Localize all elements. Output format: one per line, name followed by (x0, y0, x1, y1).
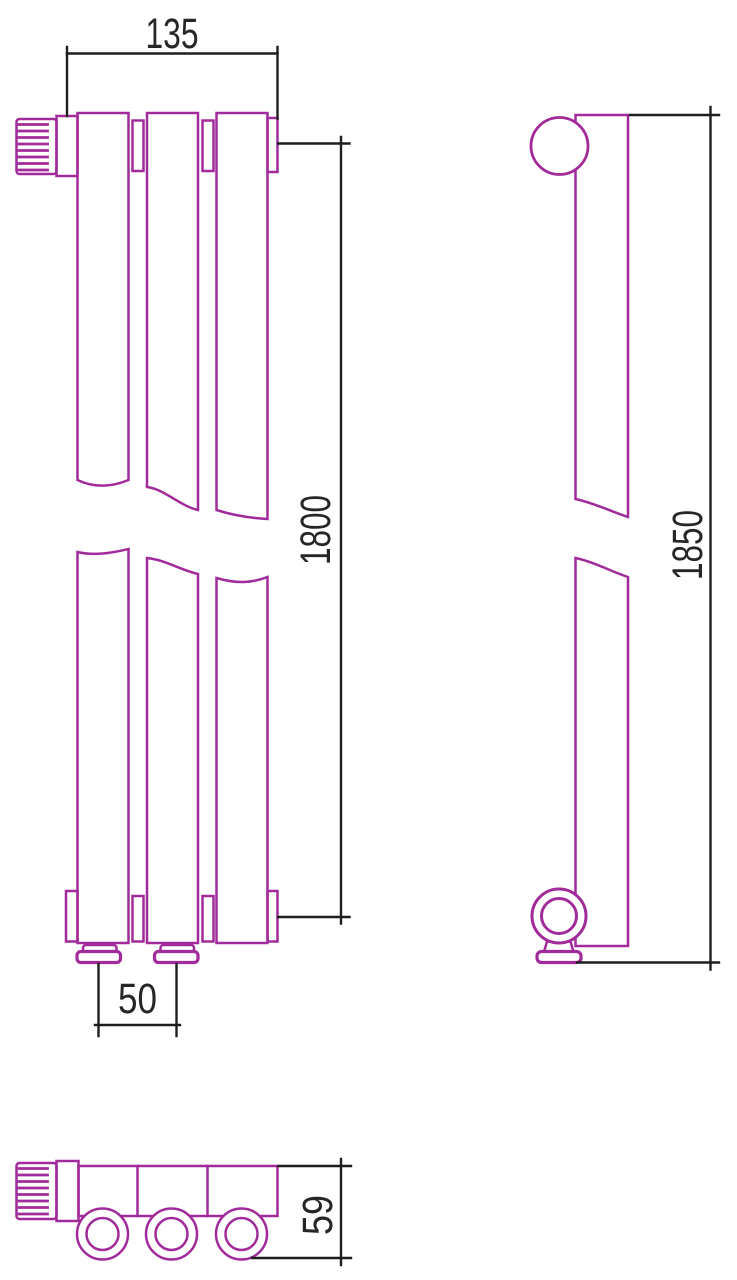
inlet-fitting-2-flange (155, 952, 199, 963)
valve-knob-bottom (17, 1163, 57, 1219)
bottom-right-tab (268, 891, 278, 942)
dimension-width: 135 (67, 10, 278, 119)
valve-knurl-front (19, 125, 48, 171)
column-1-upper (78, 113, 129, 486)
top-connector-tube-2 (203, 121, 214, 172)
top-connector-tube-1 (133, 121, 144, 172)
column-3-lower (217, 577, 268, 943)
side-view (531, 115, 628, 963)
side-column-lower (576, 558, 629, 946)
valve-knurl-bottom (19, 1169, 48, 1215)
drawing-canvas: 135 1800 50 1850 59 (0, 0, 737, 1280)
dimension-connection-pitch: 50 (95, 964, 180, 1036)
column-2-section-inner (156, 1218, 188, 1250)
valve-knob-front (17, 119, 57, 174)
column-3-upper (217, 113, 268, 519)
dimension-depth: 59 (252, 1159, 351, 1265)
bottom-connector-tube-1 (133, 896, 144, 942)
column-1-lower (78, 549, 129, 943)
side-foot-base (537, 952, 581, 963)
top-right-tab (268, 118, 278, 172)
column-3-section-inner (226, 1218, 258, 1250)
column-1-section-inner (87, 1218, 119, 1250)
side-column-upper (576, 115, 629, 517)
dim-width-label: 135 (146, 10, 199, 58)
side-valve-knob-circle (531, 118, 588, 175)
valve-collar-bottom (57, 1161, 79, 1221)
dim-depth-label: 59 (294, 1195, 342, 1235)
dimensions-group: 135 1800 50 1850 59 (67, 10, 719, 1265)
dim-height-label: 1800 (292, 495, 340, 565)
dimension-overall-height: 1850 (577, 107, 719, 970)
dim-overall-label: 1850 (664, 510, 712, 580)
front-view (17, 113, 278, 963)
bottom-connector-tube-2 (203, 896, 214, 942)
valve-collar-front (57, 116, 78, 176)
bottom-left-tab (66, 891, 78, 942)
product-outline-group (17, 113, 629, 1260)
column-2-lower (147, 558, 198, 943)
radiator-technical-drawing: 135 1800 50 1850 59 (0, 0, 737, 1280)
bottom-view (17, 1161, 278, 1260)
dimension-column-height: 1800 (278, 137, 350, 924)
dim-pitch-label: 50 (118, 975, 157, 1023)
column-2-upper (147, 113, 198, 510)
inlet-fitting-1-flange (77, 952, 121, 963)
